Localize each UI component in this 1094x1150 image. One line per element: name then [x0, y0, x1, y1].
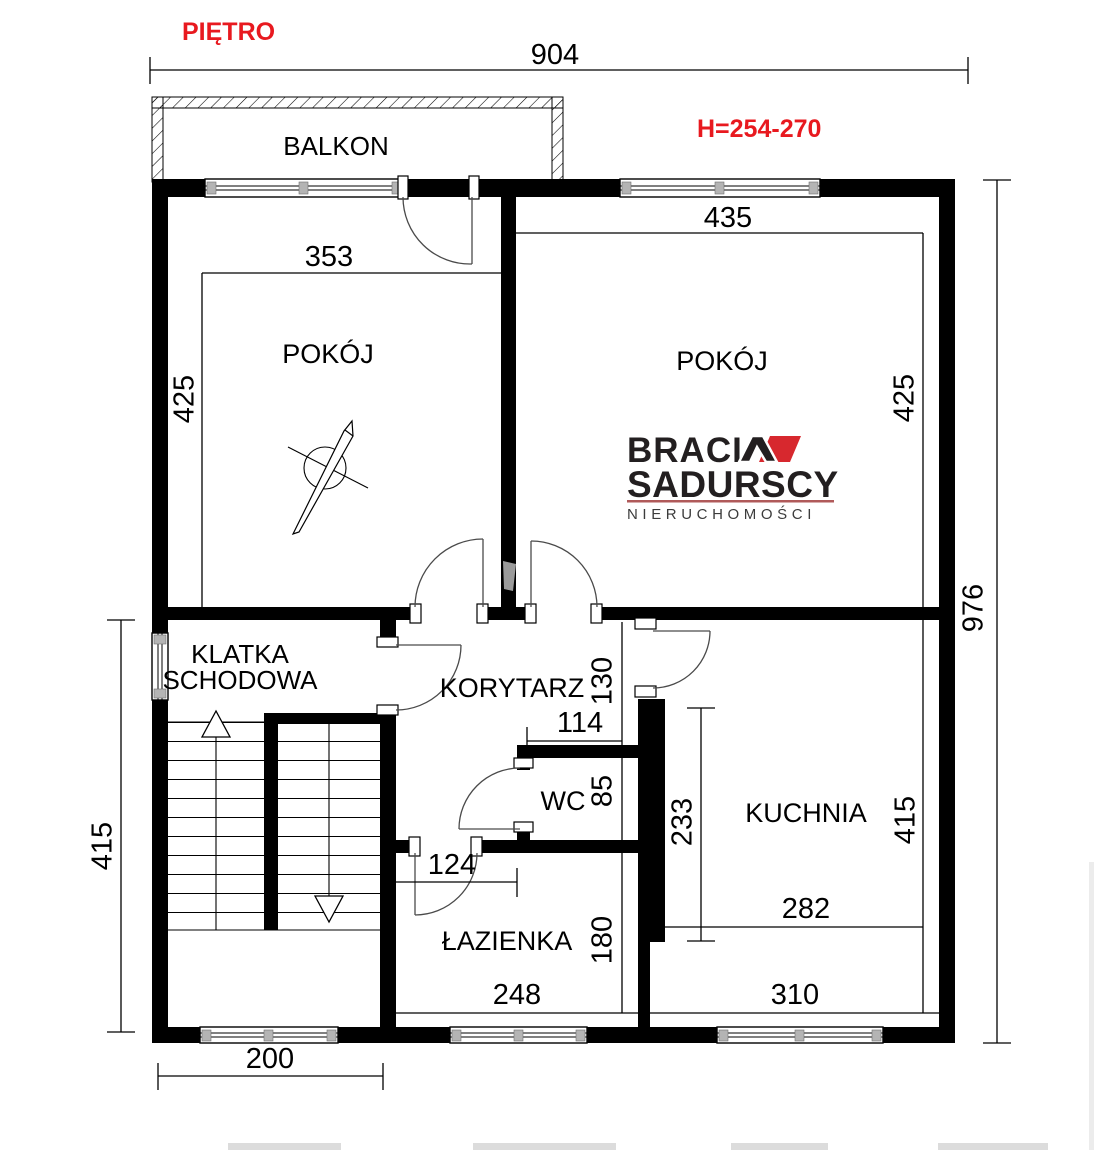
dim-room-right-height: 425 — [889, 374, 921, 422]
label-staircase-line2: SCHODOWA — [162, 665, 318, 695]
label-kitchen: KUCHNIA — [745, 798, 867, 828]
label-bathroom: ŁAZIENKA — [442, 926, 573, 956]
dim-kitchen-width-upper: 282 — [782, 893, 830, 925]
wall-stair-divider — [264, 713, 278, 930]
logo-brand-text2: SADURSCY — [627, 464, 839, 505]
dim-total-width: 904 — [531, 39, 579, 71]
dim-wc-height: 85 — [587, 775, 619, 807]
door-kitchen — [635, 618, 710, 697]
dim-room-left-height: 425 — [169, 375, 201, 423]
ceiling-height-note: H=254-270 — [697, 115, 821, 143]
dim-room-left-width: 353 — [305, 241, 353, 273]
wall-room-divider — [501, 197, 516, 607]
dim-wc-width: 114 — [557, 707, 603, 739]
label-wc: WC — [541, 786, 586, 816]
label-balcony: BALKON — [283, 131, 389, 161]
floor-plan-drawing: 904 976 415 200 353 425 435 425 130 114 … — [0, 0, 1094, 1150]
door-room-left — [410, 539, 488, 623]
label-room-left: POKÓJ — [282, 338, 374, 369]
window-bottom-kitchen — [717, 1027, 883, 1043]
dim-staircase-bottom: 200 — [246, 1043, 294, 1075]
dim-room-right-width: 435 — [704, 202, 752, 234]
agency-logo: BRACI SADURSCY NIERUCHOMOŚCI — [627, 431, 839, 523]
dim-bathroom-door: 124 — [428, 849, 476, 881]
north-arrow-icon — [288, 421, 368, 534]
dim-kitchen-width-lower: 310 — [771, 979, 819, 1011]
window-top-left — [205, 179, 403, 197]
dim-staircase-side: 415 — [87, 822, 119, 870]
logo-underline — [627, 500, 834, 503]
dim-kitchen-wall-segment: 233 — [667, 798, 699, 846]
door-room-right — [525, 541, 602, 623]
dim-bathroom-height: 180 — [587, 916, 619, 964]
window-bottom-staircase — [200, 1027, 338, 1043]
dim-kitchen-height: 415 — [890, 796, 922, 844]
page-title: PIĘTRO — [182, 18, 275, 46]
label-room-right: POKÓJ — [676, 345, 768, 376]
logo-tagline: NIERUCHOMOŚCI — [627, 505, 816, 523]
dim-bathroom-width: 248 — [493, 979, 541, 1011]
window-top-right — [620, 179, 820, 197]
window-bottom-bathroom — [450, 1027, 587, 1043]
label-corridor: KORYTARZ — [440, 673, 585, 703]
dim-total-height: 976 — [958, 584, 990, 632]
floor-plan-page: 904 976 415 200 353 425 435 425 130 114 … — [0, 0, 1094, 1150]
dim-corridor-height: 130 — [587, 657, 619, 705]
wall-kitchen-thick — [638, 699, 665, 942]
walls — [152, 179, 955, 1043]
